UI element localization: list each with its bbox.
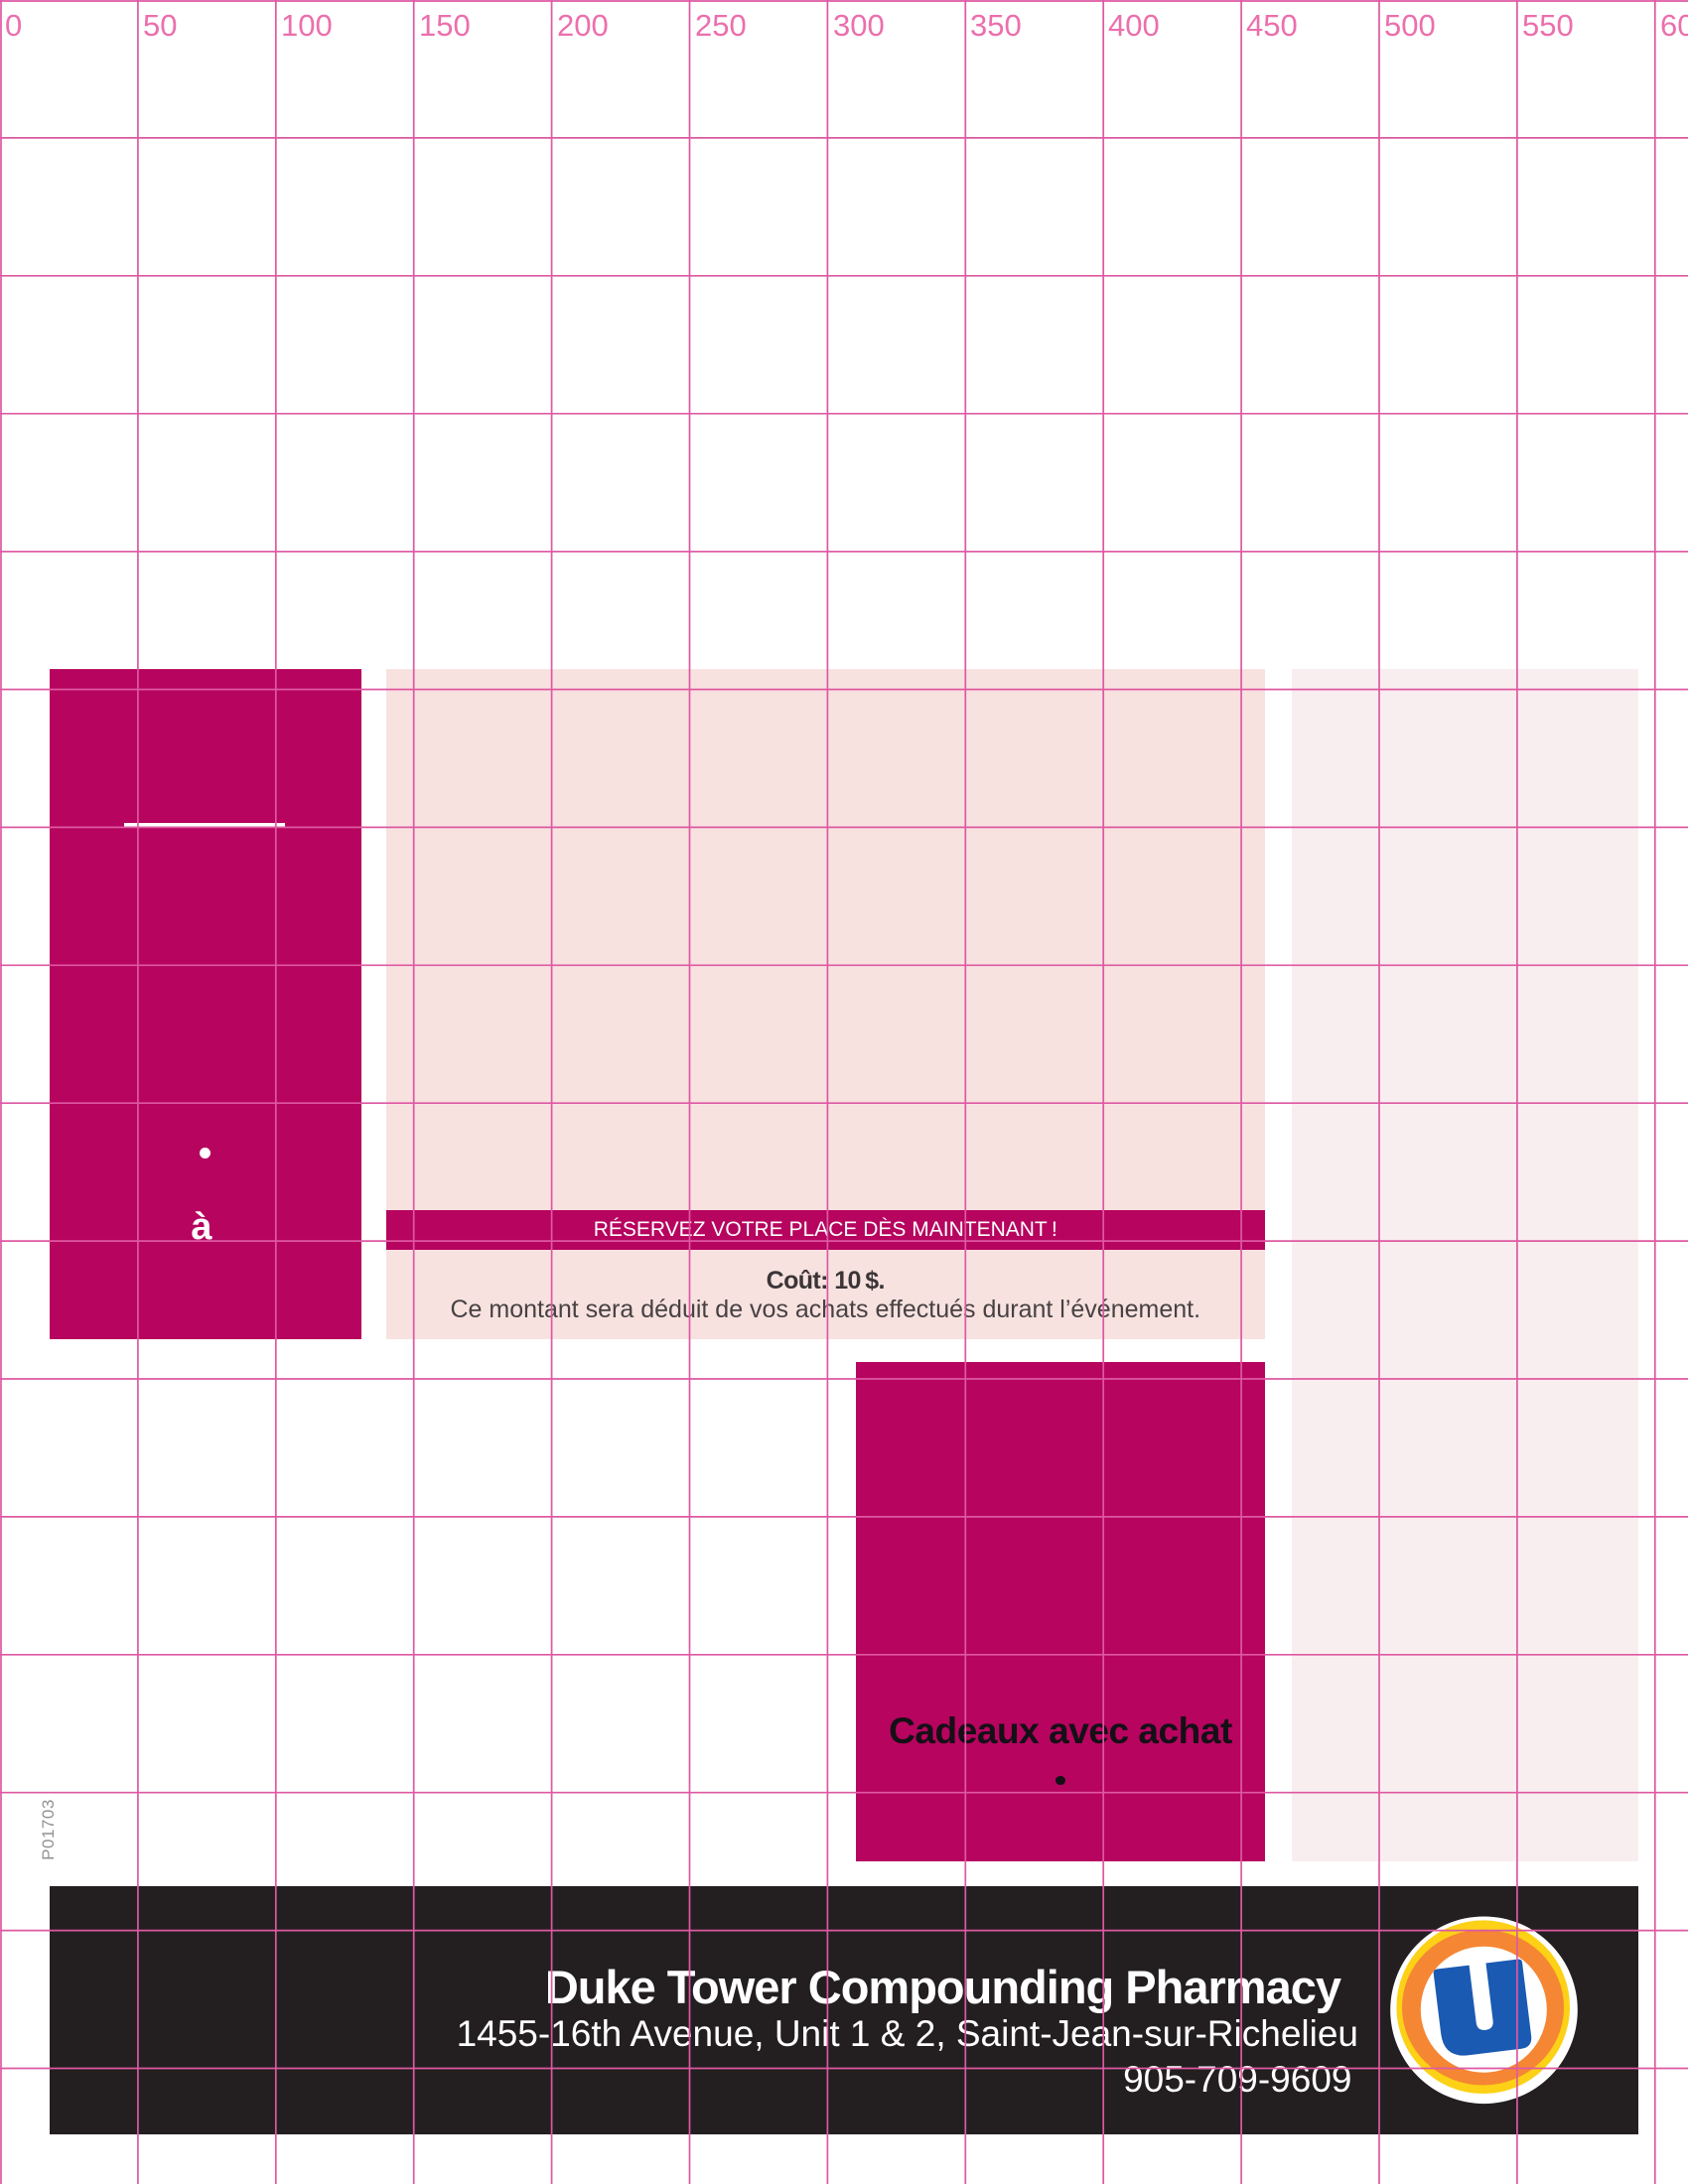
svg-text:300: 300 [833,8,885,43]
svg-text:450: 450 [1246,8,1298,43]
svg-text:150: 150 [419,8,471,43]
svg-text:0: 0 [5,8,22,43]
svg-text:200: 200 [557,8,609,43]
svg-text:50: 50 [143,8,177,43]
svg-text:250: 250 [695,8,747,43]
svg-text:500: 500 [1384,8,1436,43]
svg-text:100: 100 [281,8,333,43]
svg-text:550: 550 [1522,8,1574,43]
svg-text:350: 350 [970,8,1022,43]
svg-text:600: 600 [1660,8,1688,43]
svg-text:400: 400 [1108,8,1160,43]
